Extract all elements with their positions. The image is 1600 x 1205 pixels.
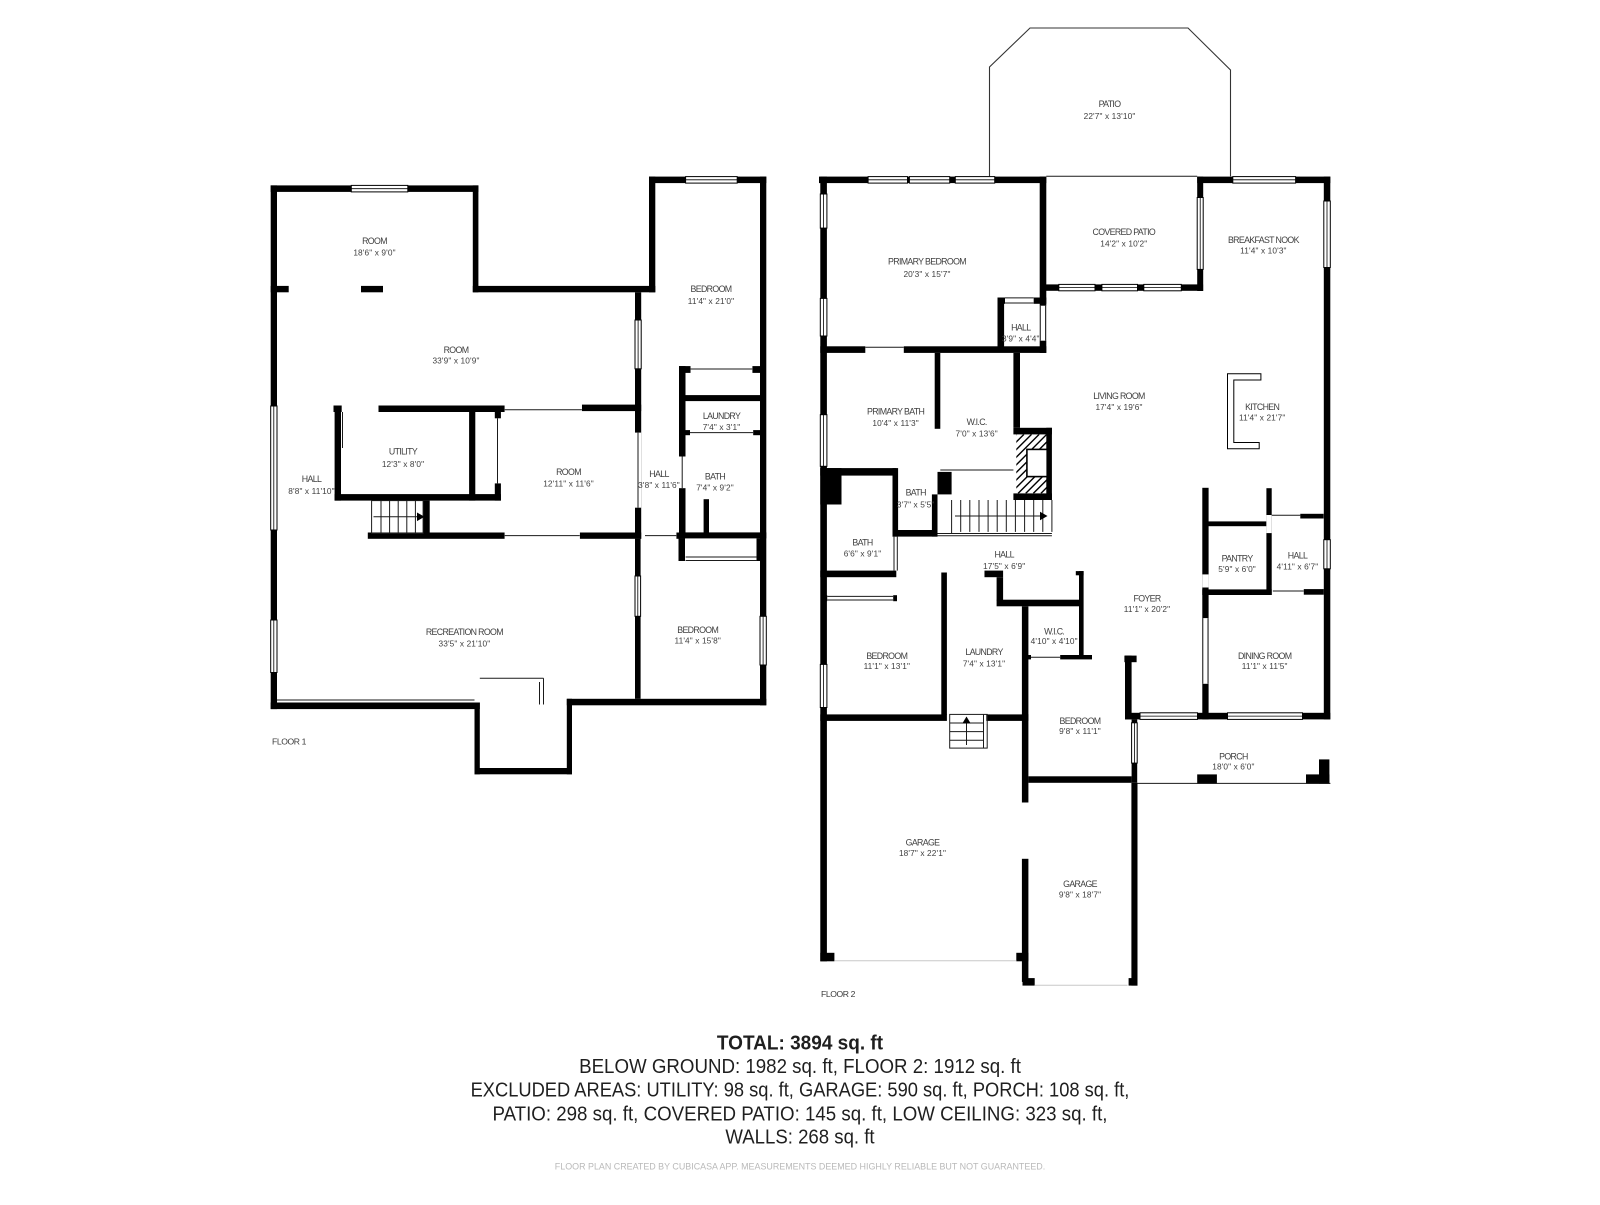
svg-text:BELOW GROUND: 1982 sq. ft, FLO: BELOW GROUND: 1982 sq. ft, FLOOR 2: 1912…	[579, 1056, 1021, 1078]
svg-text:ROOM: ROOM	[556, 467, 581, 477]
svg-text:BEDROOM: BEDROOM	[866, 651, 907, 661]
svg-text:FLOOR PLAN CREATED BY CUBICASA: FLOOR PLAN CREATED BY CUBICASA APP. MEAS…	[555, 1161, 1045, 1172]
svg-text:FLOOR 2: FLOOR 2	[821, 989, 856, 999]
svg-text:BATH: BATH	[705, 472, 726, 482]
svg-text:6'6" x 9'1": 6'6" x 9'1"	[844, 549, 882, 559]
svg-text:HALL: HALL	[1011, 322, 1031, 332]
svg-text:7'4" x 3'1": 7'4" x 3'1"	[703, 422, 741, 432]
svg-text:11'4" x 21'7": 11'4" x 21'7"	[1239, 412, 1285, 422]
svg-text:7'4" x 13'1": 7'4" x 13'1"	[963, 658, 1005, 668]
svg-text:33'5" x 21'10": 33'5" x 21'10"	[438, 638, 490, 648]
svg-text:FOYER: FOYER	[1133, 594, 1160, 604]
svg-text:11'4" x 21'0": 11'4" x 21'0"	[688, 296, 734, 306]
svg-text:DINING ROOM: DINING ROOM	[1238, 651, 1292, 661]
svg-text:3'9" x 4'4": 3'9" x 4'4"	[1002, 334, 1040, 344]
svg-text:9'8" x 11'1": 9'8" x 11'1"	[1059, 726, 1101, 736]
svg-text:HALL: HALL	[649, 469, 669, 479]
svg-text:W.I.C.: W.I.C.	[967, 417, 987, 427]
svg-text:KITCHEN: KITCHEN	[1245, 402, 1279, 412]
svg-text:PANTRY: PANTRY	[1222, 554, 1254, 564]
svg-text:WALLS: 268 sq. ft: WALLS: 268 sq. ft	[725, 1126, 875, 1148]
svg-text:18'7" x 22'1": 18'7" x 22'1"	[899, 848, 946, 858]
svg-text:BEDROOM: BEDROOM	[677, 625, 718, 635]
svg-text:BEDROOM: BEDROOM	[691, 284, 732, 294]
svg-text:12'3" x 8'0": 12'3" x 8'0"	[382, 459, 424, 469]
svg-text:BATH: BATH	[906, 487, 927, 497]
svg-text:BEDROOM: BEDROOM	[1060, 716, 1101, 726]
svg-text:20'3" x 15'7": 20'3" x 15'7"	[903, 269, 950, 279]
svg-text:HALL: HALL	[302, 474, 322, 484]
svg-text:EXCLUDED AREAS: UTILITY: 98 sq: EXCLUDED AREAS: UTILITY: 98 sq. ft, GARA…	[471, 1080, 1130, 1102]
svg-text:8'8" x 11'10": 8'8" x 11'10"	[288, 486, 334, 496]
svg-text:22'7" x 13'10": 22'7" x 13'10"	[1084, 111, 1136, 121]
svg-text:18'0" x 6'0": 18'0" x 6'0"	[1212, 762, 1254, 772]
svg-text:ROOM: ROOM	[444, 345, 469, 355]
svg-text:17'5" x 6'9": 17'5" x 6'9"	[983, 561, 1025, 571]
svg-text:COVERED PATIO: COVERED PATIO	[1093, 227, 1156, 237]
svg-text:HALL: HALL	[994, 550, 1014, 560]
svg-text:FLOOR 1: FLOOR 1	[272, 737, 307, 747]
svg-text:33'9" x 10'9": 33'9" x 10'9"	[432, 356, 479, 366]
svg-text:RECREATION ROOM: RECREATION ROOM	[426, 627, 503, 637]
svg-text:HALL: HALL	[1288, 551, 1308, 561]
svg-text:5'9" x 6'0": 5'9" x 6'0"	[1218, 564, 1256, 574]
svg-text:GARAGE: GARAGE	[1063, 879, 1098, 889]
svg-text:PRIMARY BATH: PRIMARY BATH	[867, 407, 925, 417]
svg-text:11'4" x 15'8": 11'4" x 15'8"	[674, 636, 720, 646]
svg-text:10'4" x 11'3": 10'4" x 11'3"	[872, 418, 918, 428]
svg-text:11'1" x 13'1": 11'1" x 13'1"	[864, 661, 910, 671]
svg-text:12'11" x 11'6": 12'11" x 11'6"	[543, 478, 594, 488]
svg-text:4'11" x 6'7": 4'11" x 6'7"	[1277, 561, 1319, 571]
svg-text:7'4" x 9'2": 7'4" x 9'2"	[696, 483, 734, 493]
svg-text:LAUNDRY: LAUNDRY	[703, 411, 741, 421]
svg-text:3'8" x 11'6": 3'8" x 11'6"	[638, 480, 680, 490]
svg-text:14'2" x 10'2": 14'2" x 10'2"	[1100, 238, 1147, 248]
svg-text:11'4" x 10'3": 11'4" x 10'3"	[1240, 245, 1286, 255]
svg-text:PORCH: PORCH	[1219, 751, 1248, 761]
svg-text:GARAGE: GARAGE	[906, 838, 941, 848]
svg-text:11'1" x 20'2": 11'1" x 20'2"	[1124, 604, 1170, 614]
svg-text:TOTAL: 3894 sq. ft: TOTAL: 3894 sq. ft	[717, 1032, 883, 1054]
svg-text:LAUNDRY: LAUNDRY	[965, 647, 1003, 657]
svg-text:3'7" x 5'5": 3'7" x 5'5"	[897, 500, 935, 510]
svg-text:9'8" x 18'7": 9'8" x 18'7"	[1059, 890, 1101, 900]
svg-text:11'1" x 11'5": 11'1" x 11'5"	[1242, 661, 1288, 671]
svg-text:ROOM: ROOM	[362, 236, 387, 246]
svg-text:7'0" x 13'6": 7'0" x 13'6"	[956, 428, 998, 438]
svg-text:PRIMARY BEDROOM: PRIMARY BEDROOM	[888, 257, 966, 267]
svg-text:PATIO: 298 sq. ft, COVERED PAT: PATIO: 298 sq. ft, COVERED PATIO: 145 sq…	[493, 1103, 1108, 1125]
svg-text:BREAKFAST NOOK: BREAKFAST NOOK	[1228, 235, 1300, 245]
svg-text:BATH: BATH	[852, 537, 873, 547]
svg-text:UTILITY: UTILITY	[389, 447, 418, 457]
svg-text:17'4" x 19'6": 17'4" x 19'6"	[1095, 402, 1142, 412]
svg-text:LIVING ROOM: LIVING ROOM	[1093, 391, 1145, 401]
svg-text:4'10" x 4'10": 4'10" x 4'10"	[1031, 636, 1078, 646]
svg-text:PATIO: PATIO	[1099, 99, 1122, 109]
svg-text:18'6" x 9'0": 18'6" x 9'0"	[353, 247, 395, 257]
